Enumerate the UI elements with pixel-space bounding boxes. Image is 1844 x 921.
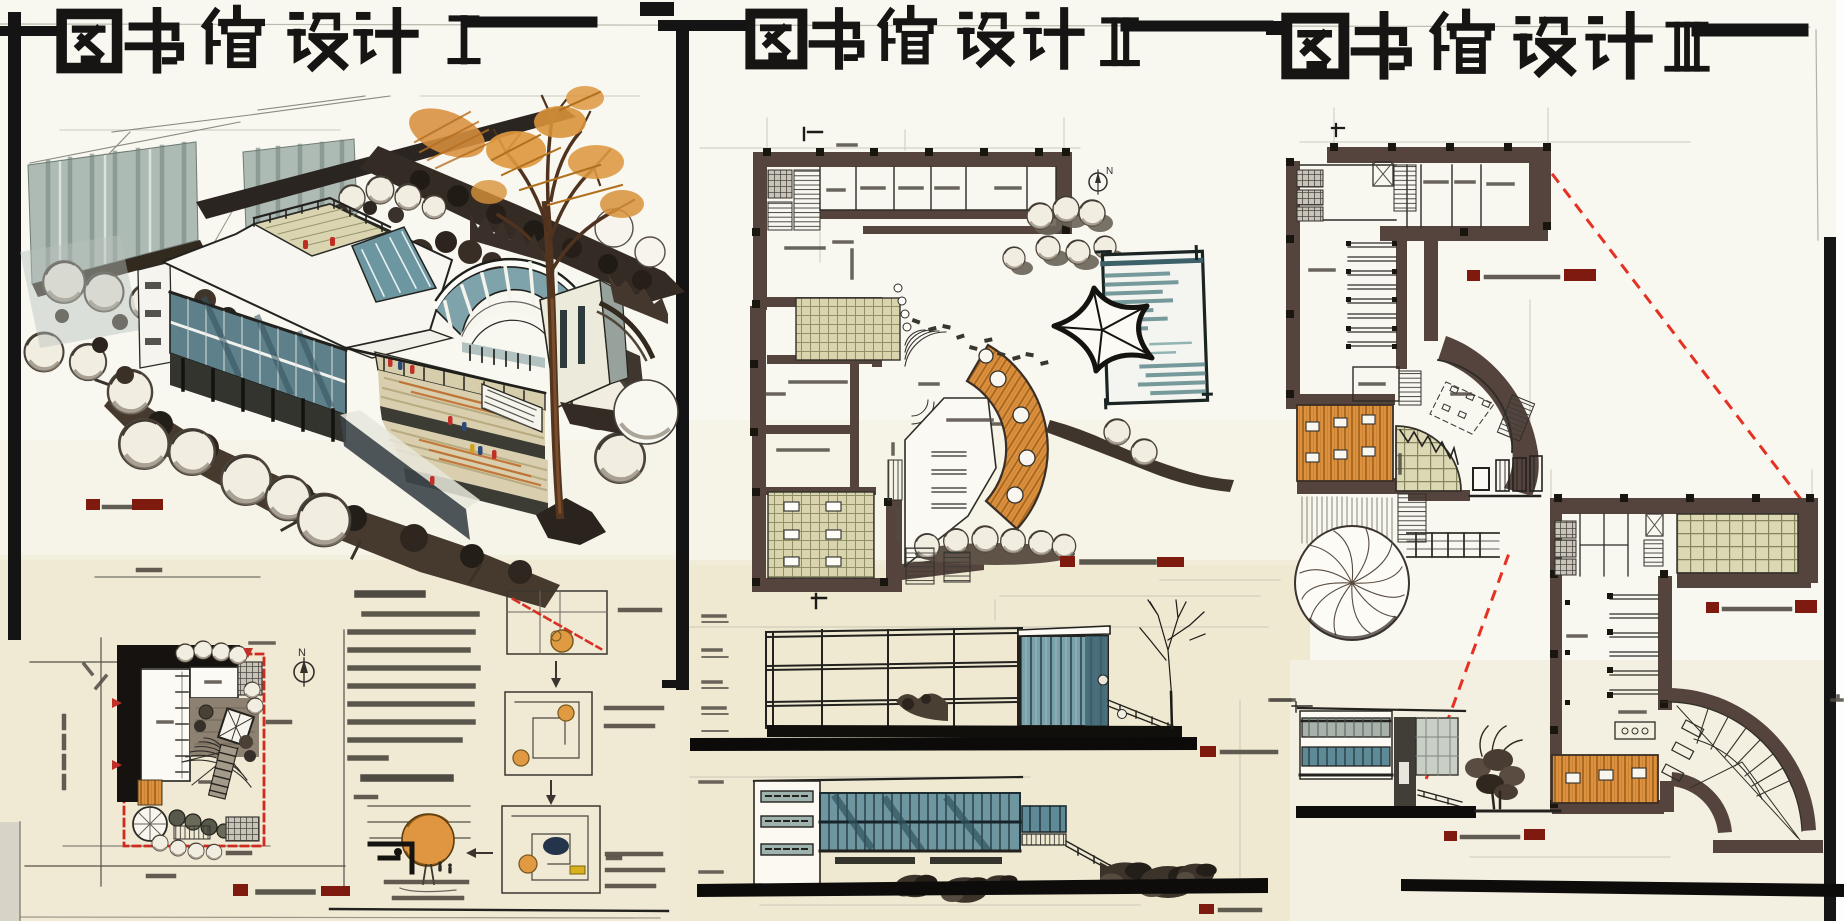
svg-text:N: N [298,647,306,659]
svg-text:N: N [1106,166,1113,177]
